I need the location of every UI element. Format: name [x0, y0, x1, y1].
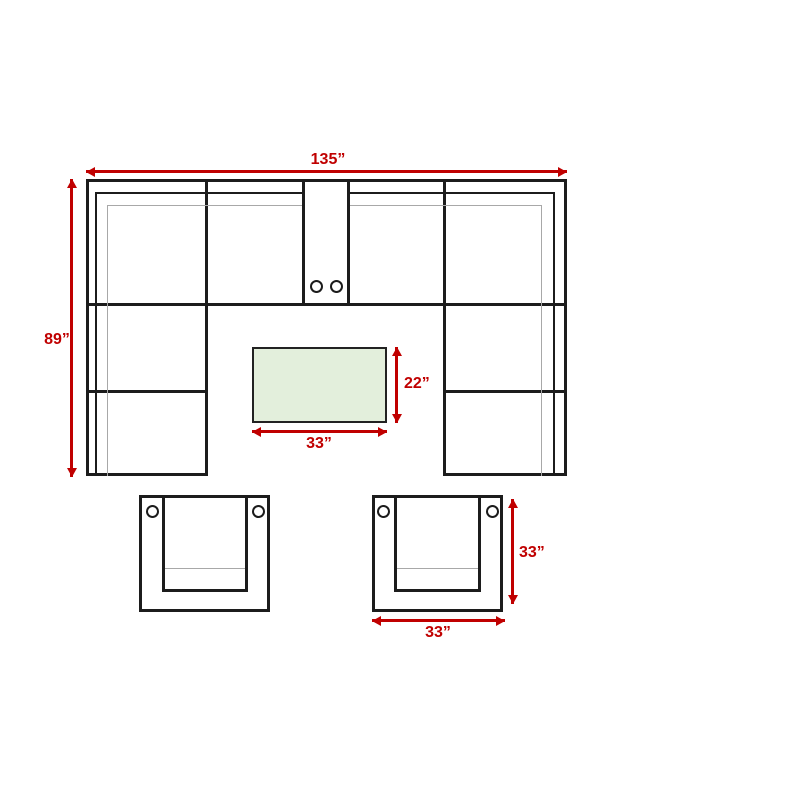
table-width-label: 33”	[306, 435, 332, 453]
cupholder-icon	[330, 280, 343, 293]
cushion-seam-line	[165, 568, 245, 569]
arm-cushion-line	[553, 192, 555, 476]
armchair-depth-arrow	[511, 499, 514, 604]
armchair-seat	[162, 495, 248, 592]
cushion-seam-line	[107, 205, 302, 206]
sectional-right-arm-column	[443, 179, 567, 476]
table-width-arrow	[252, 430, 387, 433]
cupholder-icon	[310, 280, 323, 293]
armchair-depth-label: 33”	[519, 544, 545, 562]
cushion-seam-line	[541, 205, 542, 476]
furniture-dimension-diagram: 135” 89” 22” 33” 33” 33”	[0, 0, 800, 800]
back-cushion-line	[350, 192, 553, 194]
cupholder-icon	[146, 505, 159, 518]
coffee-table	[252, 347, 387, 423]
seat-divider-line	[443, 390, 567, 393]
sectional-depth-label: 89”	[44, 331, 70, 349]
sectional-width-label: 135”	[311, 151, 346, 169]
cupholder-icon	[486, 505, 499, 518]
cushion-seam-line	[350, 205, 541, 206]
cupholder-icon	[377, 505, 390, 518]
cushion-seam-line	[107, 205, 108, 476]
sectional-depth-arrow	[70, 179, 73, 477]
arm-cushion-line	[95, 192, 97, 476]
seat-divider-line	[86, 390, 208, 393]
table-depth-arrow	[395, 347, 398, 423]
armchair-width-label: 33”	[425, 624, 451, 642]
cushion-seam-line	[397, 568, 478, 569]
armchair-width-arrow	[372, 619, 505, 622]
sectional-left-arm-column	[86, 179, 208, 476]
back-cushion-line	[96, 192, 302, 194]
cupholder-icon	[252, 505, 265, 518]
sectional-width-arrow	[86, 170, 567, 173]
table-depth-label: 22”	[404, 375, 430, 393]
armchair-seat	[394, 495, 481, 592]
